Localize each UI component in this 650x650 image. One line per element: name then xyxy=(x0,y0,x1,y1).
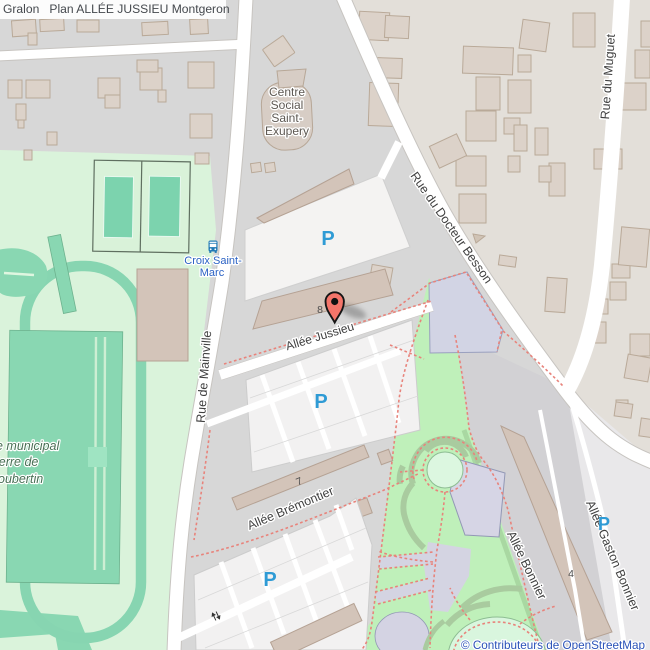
svg-text:Marc: Marc xyxy=(200,267,225,279)
svg-text:Gralon Plan ALLÉE JUSSIEU Mo: Gralon Plan ALLÉE JUSSIEU Montgeron xyxy=(3,1,230,16)
svg-text:Centre: Centre xyxy=(269,85,305,99)
svg-text:4: 4 xyxy=(568,568,574,580)
svg-text:© Contributeurs de OpenStreetM: © Contributeurs de OpenStreetMap xyxy=(461,639,646,650)
svg-text:e municipal: e municipal xyxy=(0,439,60,453)
svg-text:P: P xyxy=(598,514,610,534)
svg-text:P: P xyxy=(314,391,327,413)
svg-text:8: 8 xyxy=(317,304,323,316)
svg-text:Social: Social xyxy=(271,98,304,112)
svg-text:Saint-: Saint- xyxy=(271,111,302,125)
svg-text:oubertin: oubertin xyxy=(0,472,43,486)
svg-text:P: P xyxy=(263,569,276,591)
svg-text:Exupery: Exupery xyxy=(265,124,309,138)
svg-text:P: P xyxy=(321,228,334,250)
svg-text:Croix Saint-: Croix Saint- xyxy=(184,255,242,267)
svg-text:ierre de: ierre de xyxy=(0,455,38,469)
